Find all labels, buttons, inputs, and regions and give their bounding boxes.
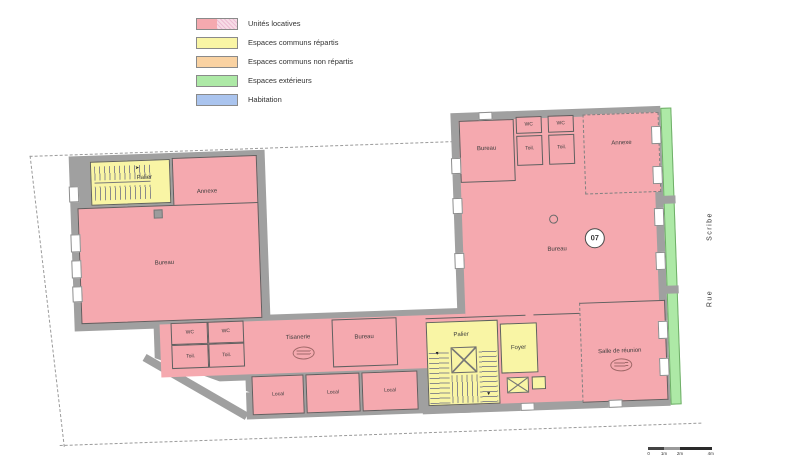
room-label-bureau-top-right: Bureau bbox=[477, 146, 497, 153]
window-opening bbox=[658, 321, 669, 339]
window-opening bbox=[521, 402, 535, 410]
room-label-bureau-right: Bureau bbox=[547, 246, 567, 253]
legend-item-exterieurs: Espaces extérieurs bbox=[196, 74, 353, 87]
stair-arrow-icon: ▼ bbox=[486, 392, 491, 397]
window-opening bbox=[69, 186, 80, 202]
legend-swatch-habitation bbox=[196, 94, 238, 106]
legend-item-communs-repartis: Espaces communs répartis bbox=[196, 36, 353, 49]
service-shaft bbox=[532, 376, 546, 389]
room-label-local: Local bbox=[384, 387, 396, 393]
legend-item-unites-locatives: Unités locatives bbox=[196, 17, 353, 30]
room-label-local: Local bbox=[272, 391, 284, 397]
scale-tick: 2m bbox=[677, 451, 683, 456]
window-opening bbox=[451, 158, 462, 174]
street-label-scribe: Scribe bbox=[707, 192, 714, 262]
room-label-wc: WC bbox=[186, 329, 195, 335]
stair-treads bbox=[95, 185, 151, 201]
stair-arrow-icon: ➤ bbox=[135, 166, 139, 171]
window-opening bbox=[454, 253, 465, 269]
room-label-toilettes: Toil. bbox=[557, 144, 566, 150]
room-label-toilettes: Toil. bbox=[222, 352, 231, 358]
legend: Unités locatives Espaces communs réparti… bbox=[196, 17, 353, 112]
room-label-annexe-left: Annexe bbox=[197, 188, 218, 195]
window-opening bbox=[72, 286, 83, 302]
scale-bar-segments bbox=[648, 447, 712, 450]
legend-swatch-communs-repartis bbox=[196, 37, 238, 49]
room-label-foyer: Foyer bbox=[511, 345, 527, 352]
room-annexe-right bbox=[582, 112, 661, 195]
window-opening bbox=[70, 234, 81, 252]
wall-segment bbox=[662, 195, 675, 203]
window-opening bbox=[478, 112, 492, 120]
legend-item-communs-non-repartis: Espaces communs non répartis bbox=[196, 55, 353, 68]
room-label-toilettes: Toil. bbox=[186, 353, 195, 359]
elevator-icon bbox=[507, 377, 530, 394]
room-label-bureau-small: Bureau bbox=[354, 334, 374, 341]
swatch-hatched-pink bbox=[217, 19, 237, 29]
legend-swatch-communs-non-repartis bbox=[196, 56, 238, 68]
legend-label: Espaces communs répartis bbox=[248, 38, 338, 47]
window-opening bbox=[651, 126, 662, 144]
window-opening bbox=[654, 208, 665, 226]
room-label-local: Local bbox=[327, 389, 339, 395]
elevator-icon bbox=[451, 346, 478, 373]
room-label-annexe-right: Annexe bbox=[611, 140, 632, 147]
stair-divider bbox=[95, 181, 151, 184]
stairwell-left: ➤ bbox=[90, 159, 171, 206]
window-opening bbox=[452, 198, 463, 214]
scale-bar: 0 1m 2m 4m bbox=[648, 445, 712, 457]
window-opening bbox=[652, 166, 663, 184]
room-label-wc: WC bbox=[525, 121, 534, 127]
room-label-wc: WC bbox=[222, 328, 231, 334]
window-opening bbox=[608, 399, 622, 407]
scale-tick: 0 bbox=[647, 451, 650, 456]
floor-plan: ➤ 07 ▼ ▼ bbox=[42, 95, 703, 457]
window-opening bbox=[655, 252, 666, 270]
street-label-rue: Rue bbox=[707, 264, 714, 334]
legend-label: Espaces communs non répartis bbox=[248, 57, 353, 66]
room-bureau-small bbox=[331, 317, 398, 367]
boundary-line-bottom bbox=[60, 423, 702, 446]
room-label-bureau-left: Bureau bbox=[155, 260, 175, 267]
stair-treads bbox=[452, 374, 479, 403]
legend-swatch-unites-locatives bbox=[196, 18, 238, 30]
room-label-palier-left: Palier bbox=[137, 175, 153, 182]
legend-item-habitation: Habitation bbox=[196, 93, 353, 106]
stair-arrow-icon: ▼ bbox=[435, 352, 440, 357]
scale-tick: 4m bbox=[708, 451, 714, 456]
room-label-palier-right: Palier bbox=[453, 332, 469, 339]
window-opening bbox=[659, 358, 670, 376]
legend-label: Unités locatives bbox=[248, 19, 301, 28]
column-symbol bbox=[154, 209, 163, 218]
window-opening bbox=[71, 260, 82, 278]
legend-label: Habitation bbox=[248, 95, 282, 104]
wall-segment bbox=[666, 285, 679, 293]
scale-tick: 1m bbox=[661, 451, 667, 456]
room-label-wc: WC bbox=[557, 120, 566, 126]
room-label-tisanerie: Tisanerie bbox=[286, 334, 311, 341]
room-label-toilettes: Toil. bbox=[525, 145, 534, 151]
legend-label: Espaces extérieurs bbox=[248, 76, 312, 85]
legend-swatch-exterieurs bbox=[196, 75, 238, 87]
stair-treads bbox=[429, 349, 451, 404]
boundary-line-left bbox=[30, 156, 65, 447]
swatch-solid-pink bbox=[197, 19, 217, 29]
